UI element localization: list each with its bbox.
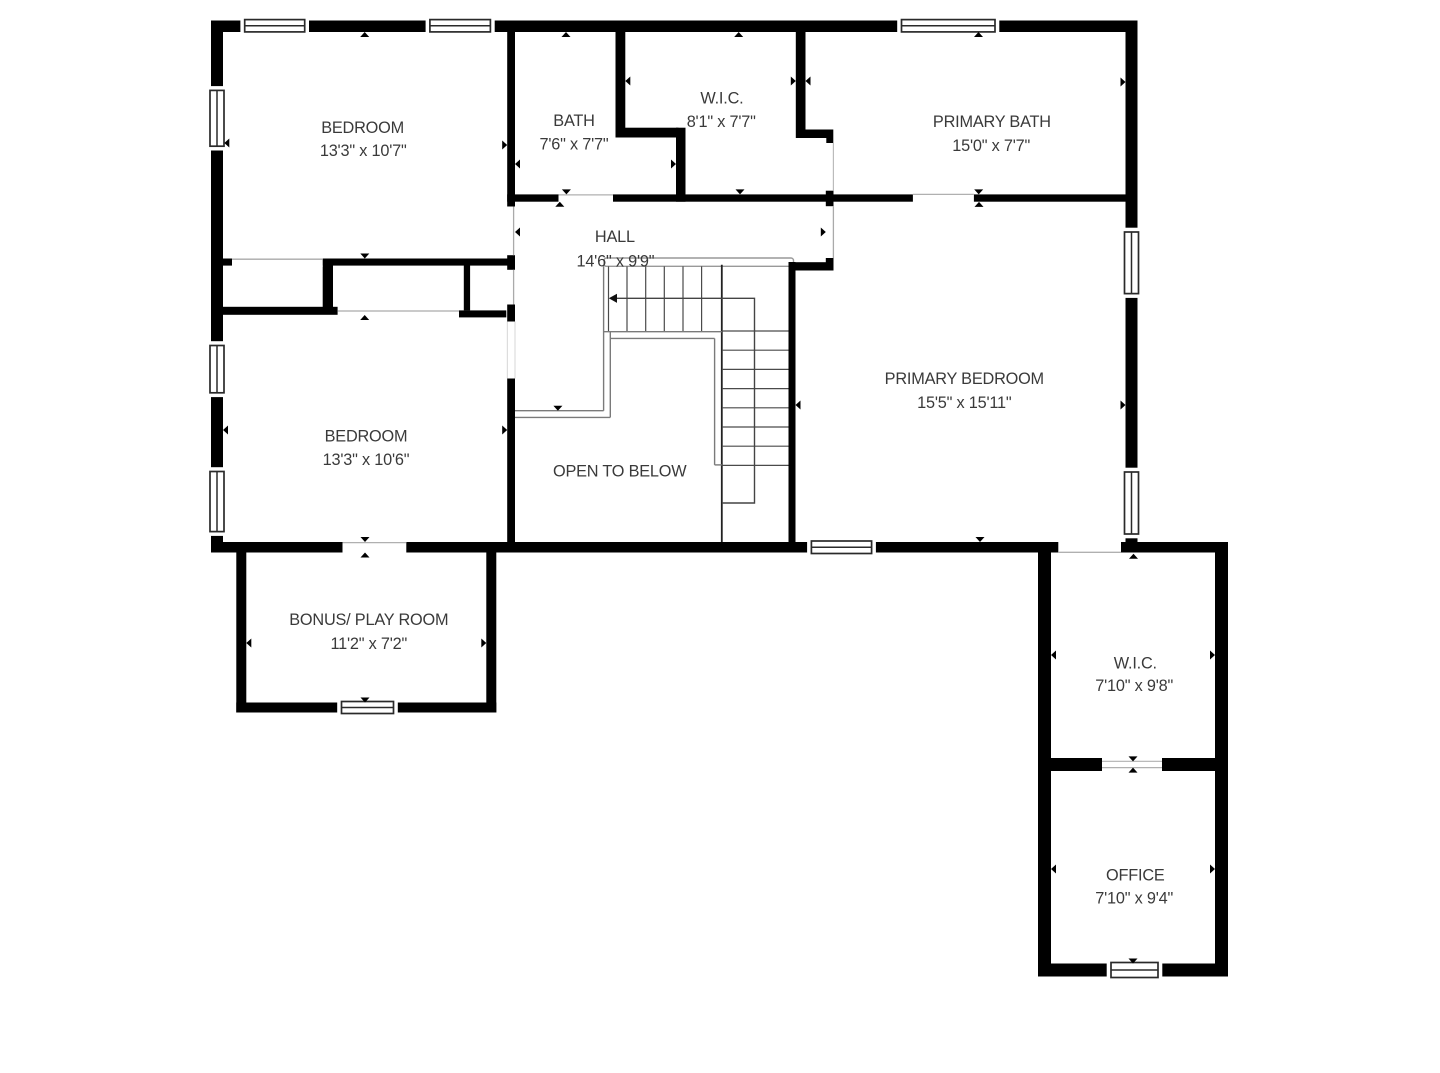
svg-text:13'3" x 10'7": 13'3" x 10'7" [320, 142, 407, 160]
svg-text:13'3" x 10'6": 13'3" x 10'6" [323, 451, 410, 469]
svg-text:HALL: HALL [595, 228, 635, 246]
svg-text:OFFICE: OFFICE [1106, 867, 1165, 885]
svg-text:15'0" x 7'7": 15'0" x 7'7" [952, 137, 1030, 155]
svg-text:8'1" x 7'7": 8'1" x 7'7" [687, 113, 756, 131]
svg-text:7'10" x 9'4": 7'10" x 9'4" [1095, 890, 1173, 908]
svg-text:BATH: BATH [553, 112, 594, 130]
svg-text:BEDROOM: BEDROOM [321, 119, 404, 137]
svg-text:PRIMARY BATH: PRIMARY BATH [933, 113, 1051, 131]
svg-text:BEDROOM: BEDROOM [325, 428, 408, 446]
svg-text:BONUS/ PLAY ROOM: BONUS/ PLAY ROOM [289, 611, 448, 629]
svg-text:11'2" x 7'2": 11'2" x 7'2" [330, 635, 407, 653]
svg-text:7'10" x 9'8": 7'10" x 9'8" [1095, 677, 1173, 695]
svg-text:OPEN TO BELOW: OPEN TO BELOW [553, 463, 687, 481]
svg-text:15'5" x 15'11": 15'5" x 15'11" [917, 394, 1012, 412]
svg-text:W.I.C.: W.I.C. [1114, 654, 1157, 672]
svg-text:PRIMARY BEDROOM: PRIMARY BEDROOM [885, 370, 1044, 388]
svg-text:14'6" x 9'9": 14'6" x 9'9" [576, 252, 654, 270]
svg-text:7'6" x 7'7": 7'6" x 7'7" [540, 136, 609, 154]
svg-text:W.I.C.: W.I.C. [700, 90, 743, 108]
